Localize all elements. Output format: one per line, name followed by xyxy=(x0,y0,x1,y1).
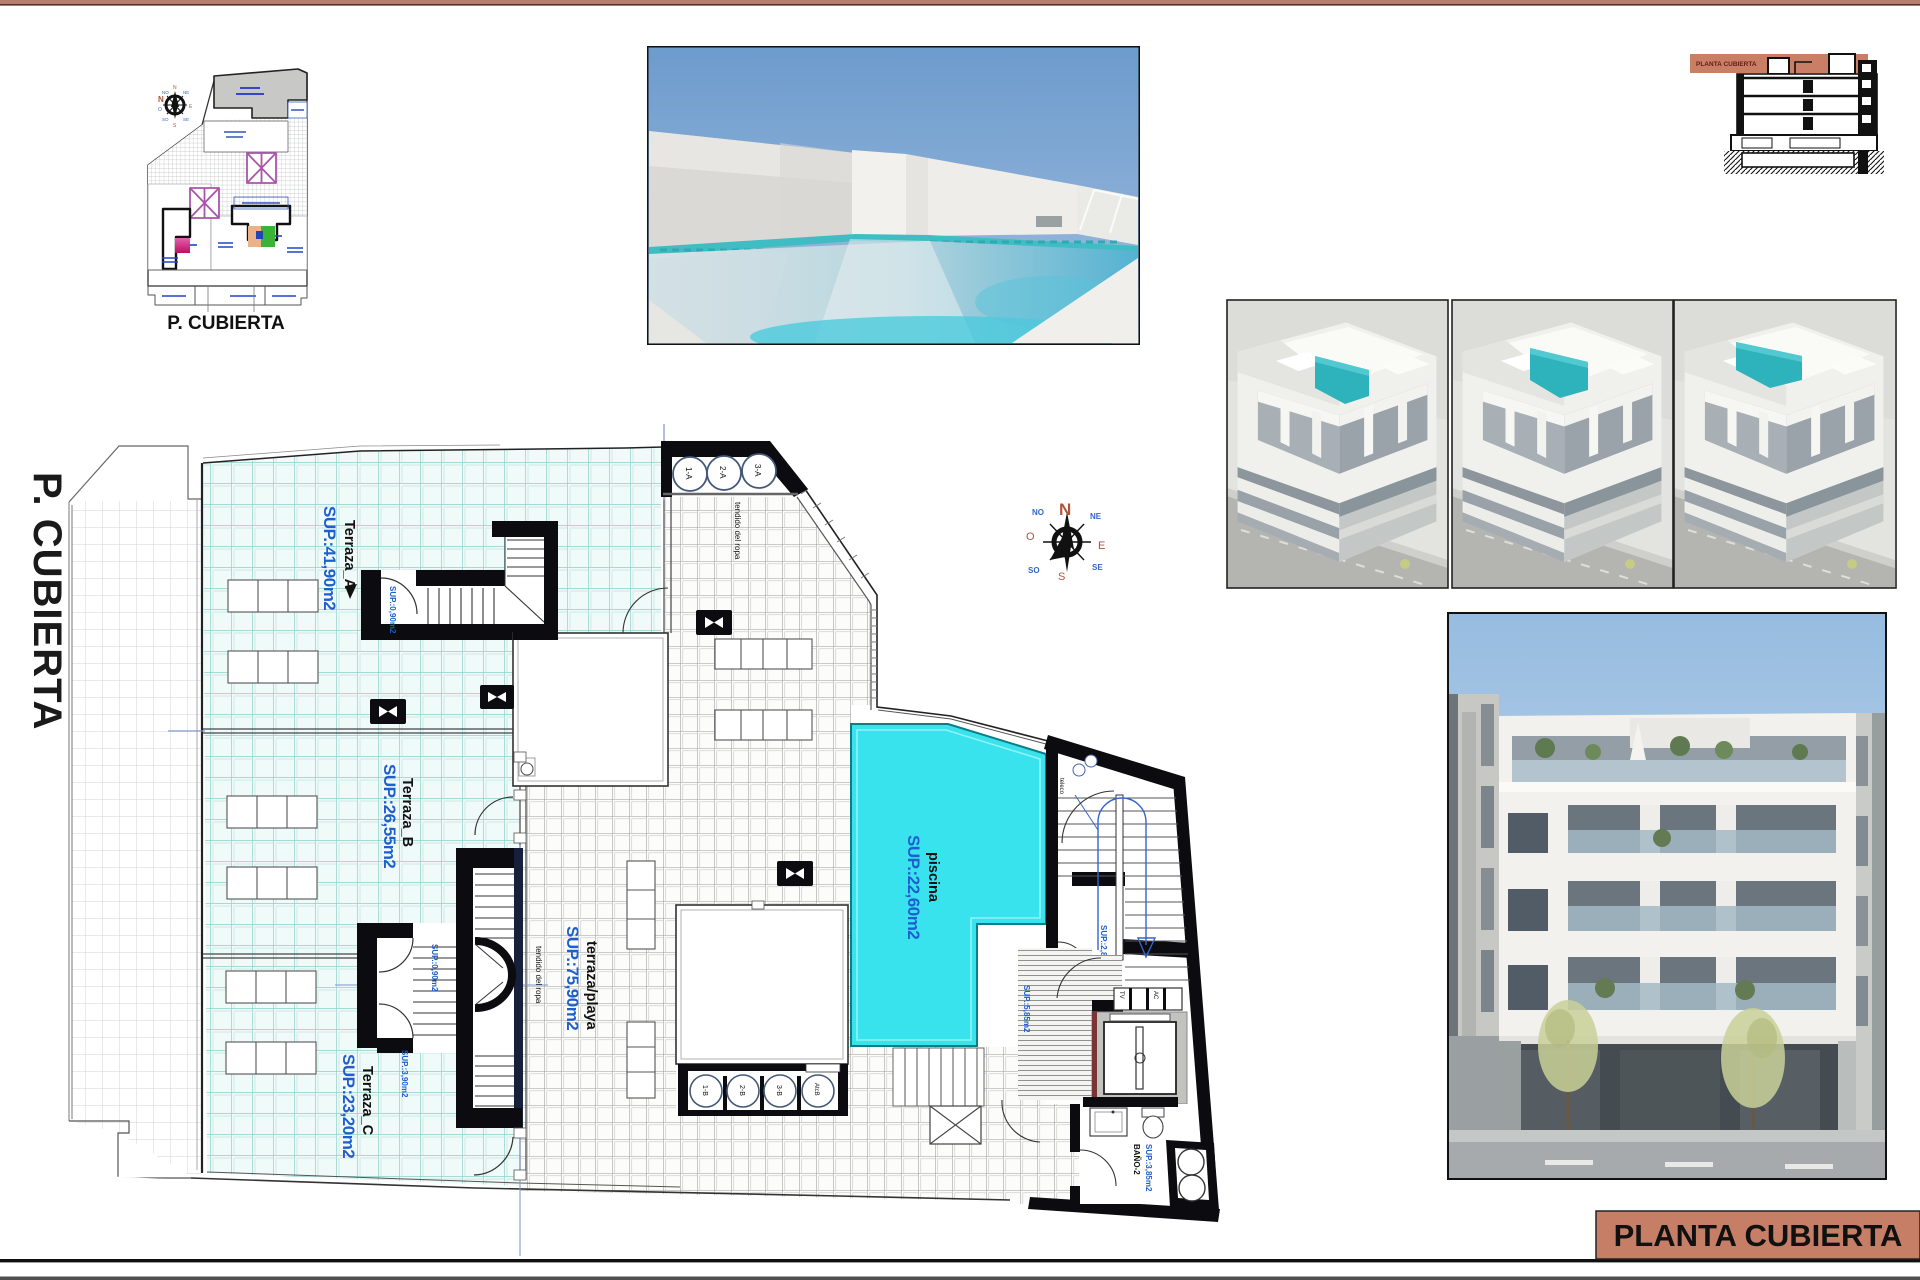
svg-text:3-B: 3-B xyxy=(775,1085,782,1096)
svg-text:piscina: piscina xyxy=(925,852,941,903)
svg-text:SUP.:22,60m2: SUP.:22,60m2 xyxy=(904,835,923,939)
svg-text:3-A: 3-A xyxy=(753,464,762,477)
svg-text:1-B: 1-B xyxy=(701,1085,708,1096)
svg-text:SUP.:75,90m2: SUP.:75,90m2 xyxy=(563,926,582,1030)
svg-text:AtcB: AtcB xyxy=(813,1083,819,1096)
svg-text:SO: SO xyxy=(162,117,169,122)
svg-text:NO: NO xyxy=(1032,508,1044,517)
svg-text:NO: NO xyxy=(162,90,169,95)
svg-text:PLANTA CUBIERTA: PLANTA CUBIERTA xyxy=(1614,1218,1903,1253)
svg-text:SUP.:3,90m2: SUP.:3,90m2 xyxy=(400,1050,409,1098)
svg-text:NE: NE xyxy=(1090,512,1102,521)
svg-text:N: N xyxy=(173,85,177,91)
svg-text:SO: SO xyxy=(1028,566,1040,575)
svg-text:P. CUBIERTA: P. CUBIERTA xyxy=(25,472,69,730)
svg-text:terraza/playa: terraza/playa xyxy=(583,941,599,1031)
svg-text:tendido del ropa: tendido del ropa xyxy=(534,946,543,1004)
svg-text:Terraza_B: Terraza_B xyxy=(399,778,415,847)
svg-text:NE: NE xyxy=(183,90,189,95)
svg-text:N: N xyxy=(158,95,164,104)
svg-text:AC: AC xyxy=(1152,991,1158,1000)
svg-text:SUP.:41,90m2: SUP.:41,90m2 xyxy=(320,506,339,610)
svg-text:Terraza_A: Terraza_A xyxy=(341,520,357,590)
svg-text:SE: SE xyxy=(1092,563,1103,572)
svg-text:SUP.:26,55m2: SUP.:26,55m2 xyxy=(380,764,399,868)
svg-text:Terraza_C: Terraza_C xyxy=(359,1066,375,1136)
svg-text:SUP.:0,90m2: SUP.:0,90m2 xyxy=(388,586,397,634)
svg-text:O: O xyxy=(1026,531,1035,543)
svg-text:2-A: 2-A xyxy=(718,466,727,479)
svg-text:SUP.:23,20m2: SUP.:23,20m2 xyxy=(339,1054,358,1158)
svg-text:N: N xyxy=(1059,500,1071,519)
svg-text:SE: SE xyxy=(183,117,189,122)
svg-text:O: O xyxy=(158,107,162,113)
svg-text:teleco: teleco xyxy=(1058,778,1064,795)
svg-text:2-B: 2-B xyxy=(738,1085,745,1096)
svg-text:BAÑO-2: BAÑO-2 xyxy=(1132,1144,1141,1175)
svg-text:tendido del ropa: tendido del ropa xyxy=(733,502,742,560)
svg-text:1-A: 1-A xyxy=(684,467,693,480)
svg-text:P. CUBIERTA: P. CUBIERTA xyxy=(167,313,285,334)
svg-text:SUP.:3,85m2: SUP.:3,85m2 xyxy=(1144,1144,1153,1192)
svg-text:TV: TV xyxy=(1118,991,1124,999)
svg-text:SUP.:0,90m2: SUP.:0,90m2 xyxy=(430,944,439,992)
svg-text:E: E xyxy=(1098,540,1105,552)
svg-text:SUP.:5,85m2: SUP.:5,85m2 xyxy=(1022,985,1031,1033)
svg-text:S: S xyxy=(1058,571,1065,583)
svg-text:PLANTA CUBIERTA: PLANTA CUBIERTA xyxy=(1696,61,1757,68)
